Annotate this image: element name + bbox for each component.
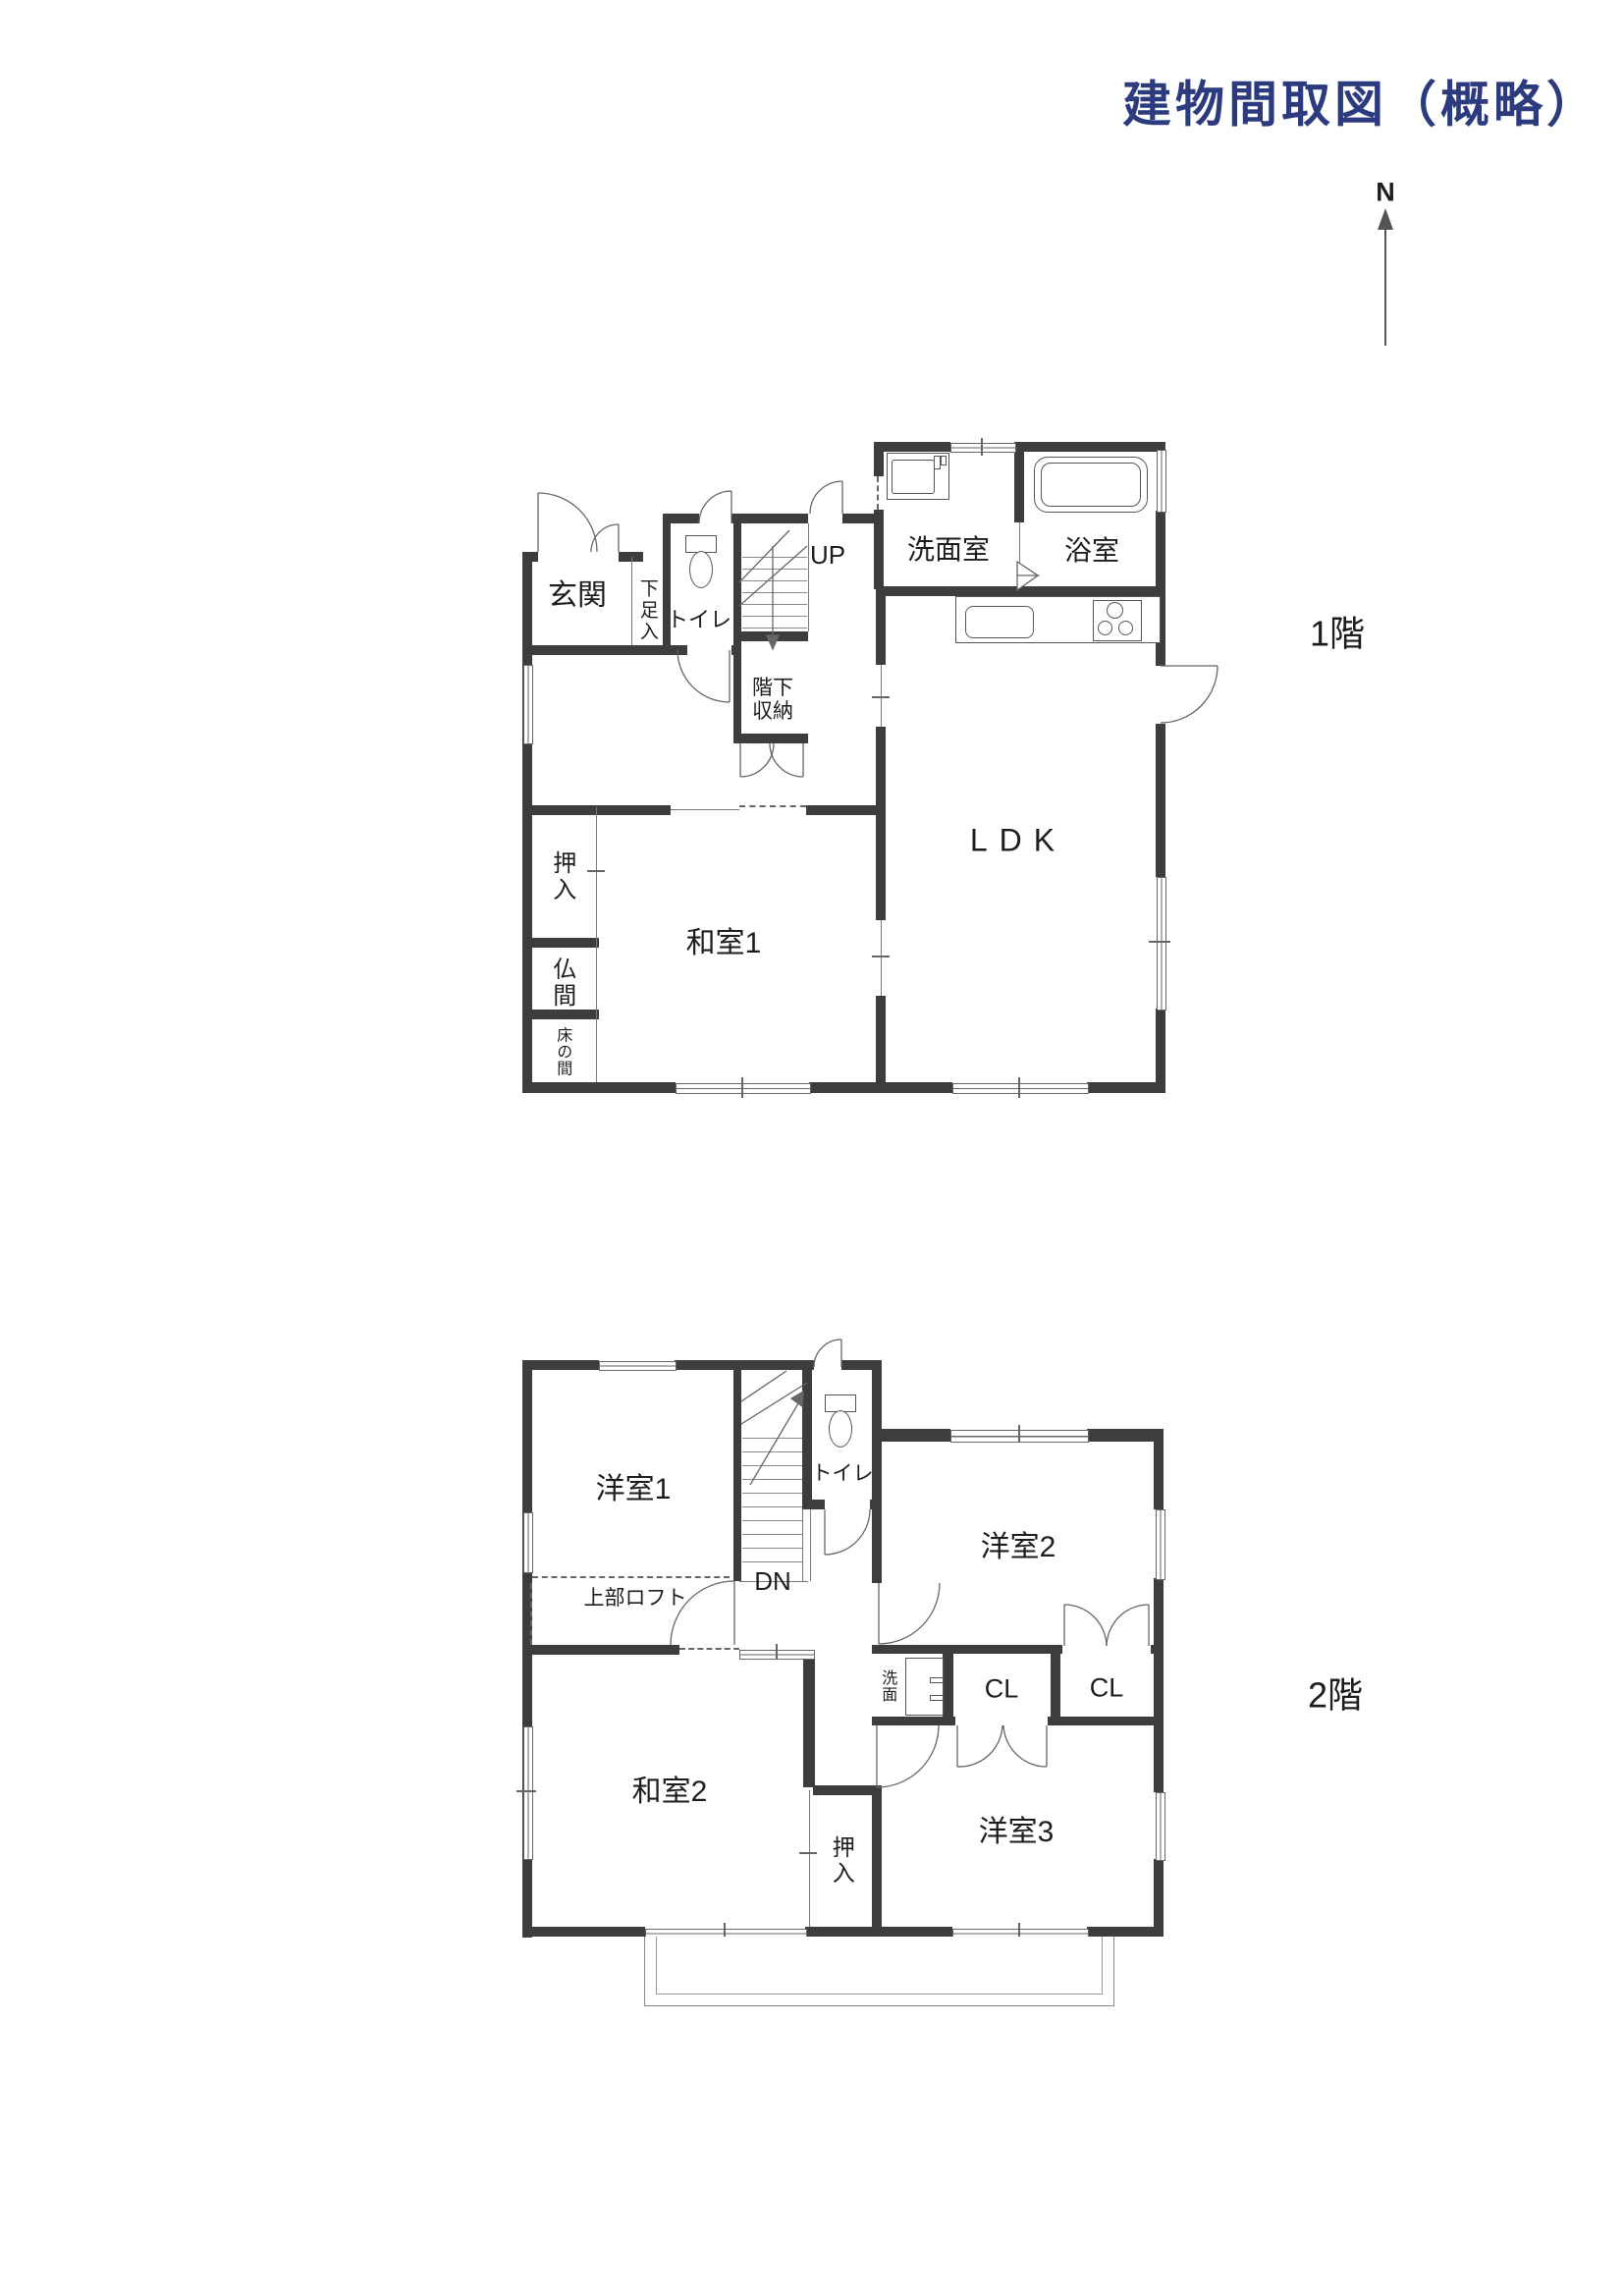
stairs-up-label: UP	[810, 541, 845, 571]
toilet2-door-arc	[825, 1509, 870, 1555]
washroom-sink-basin-icon	[892, 460, 935, 494]
veranda-inner-outline	[656, 1937, 1103, 1995]
room-label-yoshitsu1: 洋室1	[596, 1473, 672, 1507]
top-door-arc	[814, 1339, 841, 1367]
bathtub-inner-icon	[1041, 463, 1141, 507]
kitchen-sink-icon	[965, 606, 1034, 638]
compass-arrow	[1378, 208, 1393, 346]
room-label-yoshitsu2: 洋室2	[981, 1531, 1056, 1565]
faucet-icon	[930, 1677, 944, 1683]
bath-folding-door-icon	[1017, 562, 1038, 590]
room-label-toilet2: トイレ	[812, 1462, 874, 1486]
closet1-door-right-arc	[1003, 1725, 1047, 1767]
hall-door-arc	[699, 491, 731, 523]
room-label-closet2: CL	[1090, 1672, 1124, 1703]
burner-icon	[1107, 602, 1123, 619]
ldk-door-arc	[1161, 666, 1218, 723]
faucet-icon	[930, 1695, 944, 1701]
room-label-yoshitsu3: 洋室3	[979, 1816, 1055, 1850]
stairs-down-label: DN	[754, 1567, 791, 1597]
room-label-bath: 浴室	[1064, 535, 1119, 567]
storage-door-left-arc	[740, 743, 774, 777]
closet2-door-left-arc	[1064, 1605, 1107, 1646]
room-label-washroom: 洗面室	[907, 534, 990, 566]
compass-arrow-head	[1378, 208, 1393, 230]
floor2-door-arcs	[671, 1339, 1149, 1787]
room-label-senmen2: 洗面	[878, 1669, 895, 1703]
floorplan-page: 建物間取図（概略） N 1階 2階 玄関 下足入 トイレ UP 階下収納 洗面室…	[0, 0, 1624, 2296]
room-label-understair: 階下収納	[748, 677, 797, 724]
toilet-door-arc	[677, 650, 730, 702]
room-label-oshiire1: 押入	[548, 850, 575, 903]
page-title: 建物間取図（概略）	[1122, 77, 1599, 134]
loft-label: 上部ロフト	[584, 1587, 687, 1611]
room-label-toilet1: トイレ	[667, 607, 731, 631]
room-label-washitsu2: 和室2	[632, 1776, 708, 1810]
closet1-door-left-arc	[957, 1725, 1002, 1767]
room-label-closet1: CL	[985, 1673, 1019, 1704]
floor1-label: 1階	[1310, 613, 1365, 653]
toilet-bowl-icon	[829, 1410, 852, 1448]
entrance-door-arc	[538, 493, 597, 552]
room-label-getabako: 下足入	[636, 578, 658, 643]
room-label-butsuma: 仏間	[548, 957, 575, 1010]
toilet-bowl-icon	[689, 551, 713, 588]
entrance-subdoor-arc	[591, 524, 619, 552]
yoshitsu3-door-arc	[877, 1725, 939, 1787]
room-label-ldk: LDK	[970, 823, 1066, 859]
faucet-icon	[941, 456, 947, 465]
stair-arrow-head	[767, 635, 779, 649]
corridor-door-arc	[810, 481, 842, 514]
room-label-tokonoma: 床の間	[553, 1027, 570, 1077]
floor2-label: 2階	[1308, 1674, 1363, 1715]
yoshitsu2-door-arc	[879, 1583, 940, 1644]
faucet-icon	[934, 456, 941, 469]
storage-door-right-arc	[770, 743, 803, 777]
burner-icon	[1098, 621, 1112, 635]
room-label-oshiire2: 押入	[829, 1835, 854, 1886]
washbasin-icon	[905, 1658, 944, 1716]
closet2-door-right-arc	[1107, 1605, 1149, 1646]
stair-direction-line	[750, 1398, 801, 1485]
burner-icon	[1118, 621, 1133, 635]
room-label-genkan: 玄関	[548, 579, 607, 614]
room-label-washitsu1: 和室1	[686, 927, 762, 961]
compass-north-label: N	[1376, 177, 1395, 207]
